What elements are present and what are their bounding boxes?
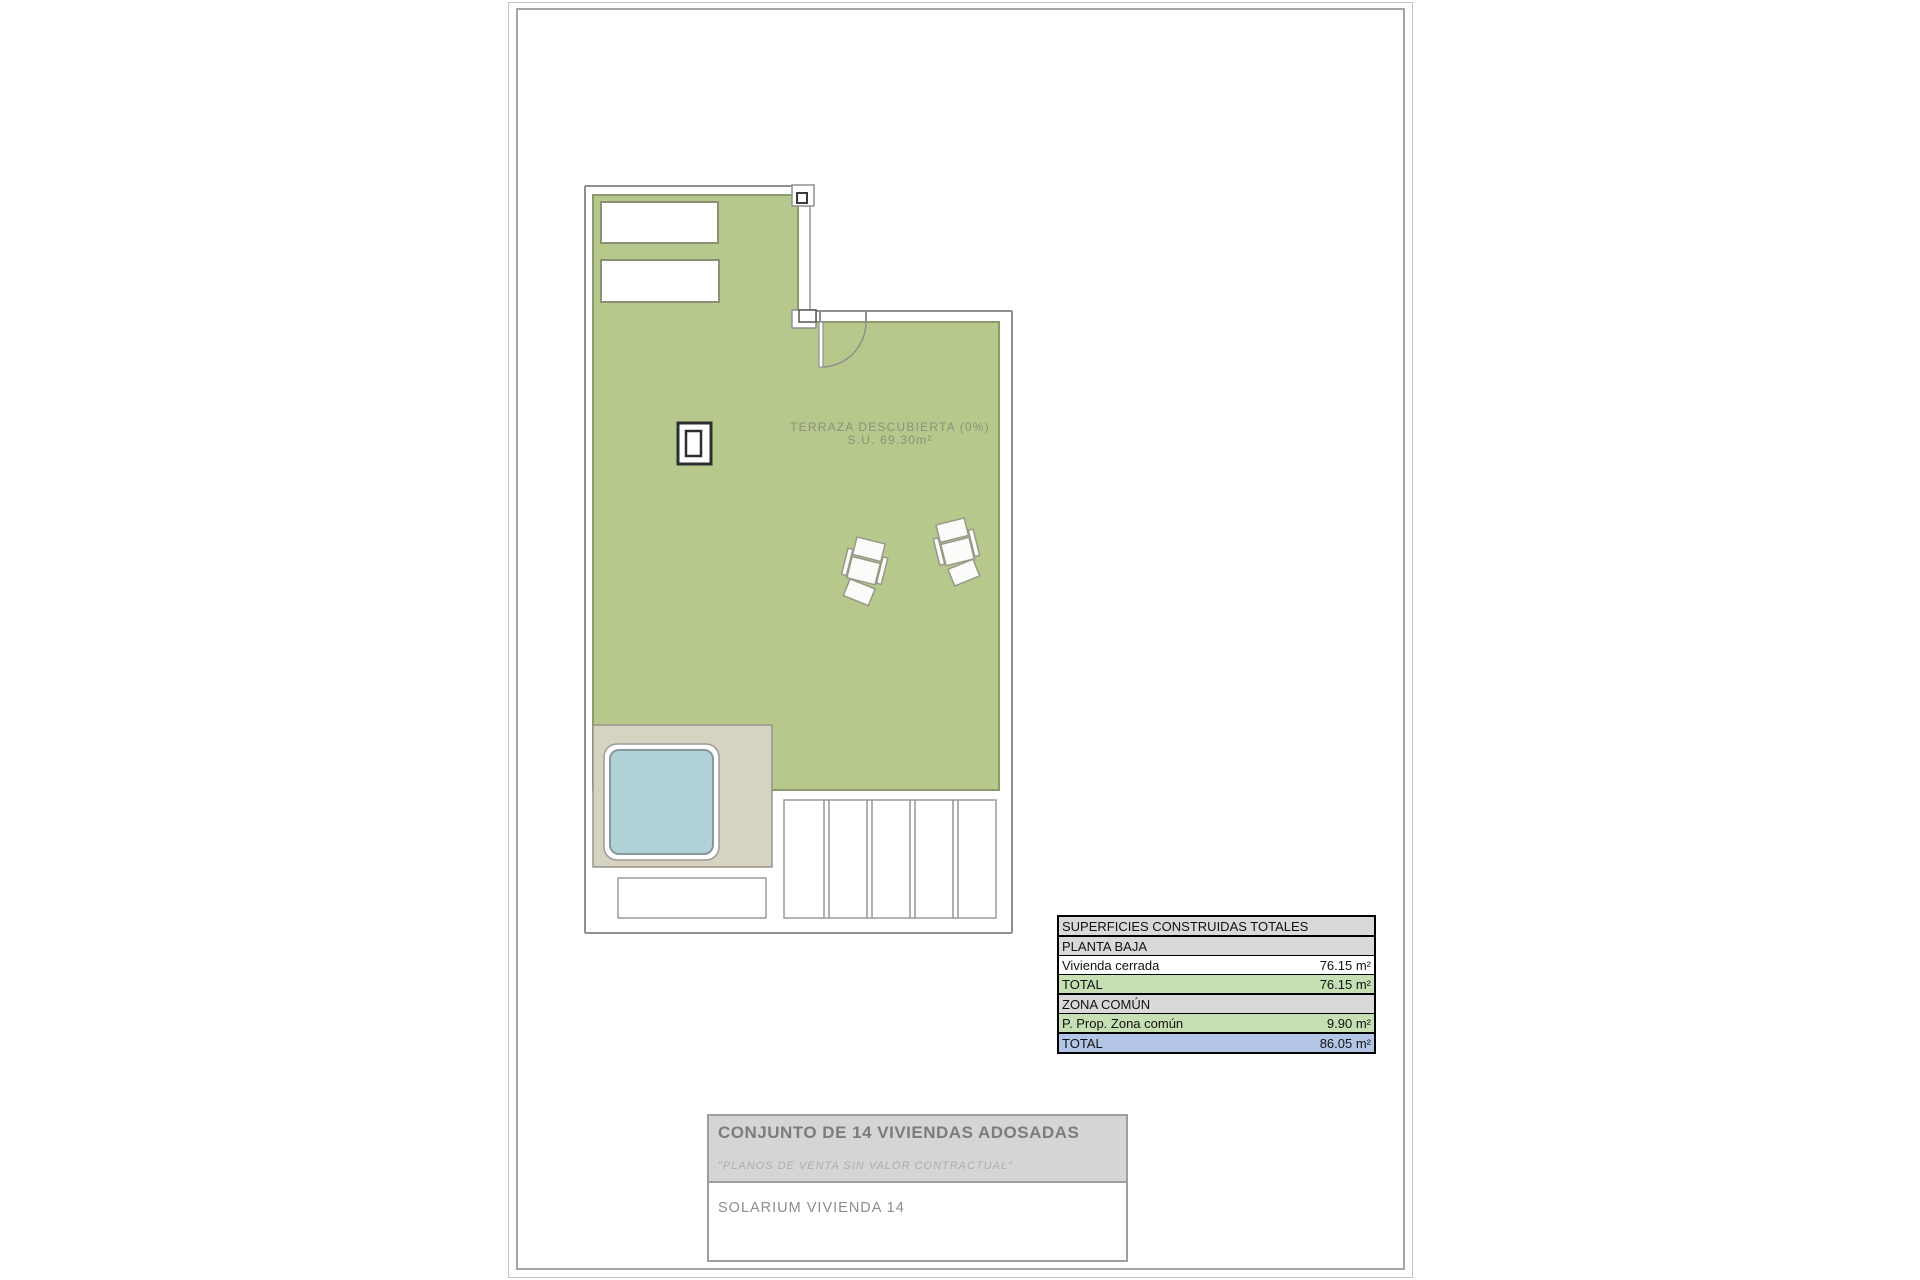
pool [610,750,713,854]
row-label: PLANTA BAJA [1062,939,1371,954]
table-row-zona-comun: ZONA COMÚN [1059,993,1374,1013]
roof-opening-upper [601,202,718,243]
table-row-vivienda-cerrada: Vivienda cerrada 76.15 m² [1059,955,1374,974]
row-value: 76.15 m² [1320,977,1371,992]
title-block-body: SOLARIUM VIVIENDA 14 [709,1183,1126,1260]
terrace-label-line1: TERRAZA DESCUBIERTA (0%) [790,420,990,434]
row-label: P. Prop. Zona común [1062,1016,1327,1031]
row-label: TOTAL [1062,977,1320,992]
roof-opening-lower [601,260,719,302]
row-value: 86.05 m² [1320,1036,1371,1051]
planter [618,878,766,918]
drawing-sheet-page: TERRAZA DESCUBIERTA (0%) S.U. 69.30m² SU… [0,0,1920,1280]
row-label: ZONA COMÚN [1062,997,1371,1012]
solarium-floor-plan: TERRAZA DESCUBIERTA (0%) S.U. 69.30m² [560,160,1040,960]
column-mid [792,310,816,328]
title-block-header: CONJUNTO DE 14 VIVIENDAS ADOSADAS "PLANO… [709,1116,1126,1183]
table-row-total-planta: TOTAL 76.15 m² [1059,974,1374,993]
sheet-name: SOLARIUM VIVIENDA 14 [718,1200,905,1216]
disclaimer-text: "PLANOS DE VENTA SIN VALOR CONTRACTUAL" [718,1160,1013,1172]
areas-table: SUPERFICIES CONSTRUIDAS TOTALES PLANTA B… [1057,915,1376,1054]
table-row-prop-zona-comun: P. Prop. Zona común 9.90 m² [1059,1013,1374,1032]
chimney [678,423,711,464]
areas-table-header: SUPERFICIES CONSTRUIDAS TOTALES [1059,917,1374,935]
table-row-total-general: TOTAL 86.05 m² [1059,1032,1374,1052]
row-value: 9.90 m² [1327,1016,1371,1031]
pergola-slats [784,800,996,918]
terrace-label-line2: S.U. 69.30m² [847,433,932,447]
row-value: 76.15 m² [1320,958,1371,973]
table-row-planta-baja: PLANTA BAJA [1059,935,1374,955]
title-block: CONJUNTO DE 14 VIVIENDAS ADOSADAS "PLANO… [707,1114,1128,1262]
column-top [792,185,814,206]
areas-table-title: SUPERFICIES CONSTRUIDAS TOTALES [1062,919,1371,934]
row-label: Vivienda cerrada [1062,958,1320,973]
project-title: CONJUNTO DE 14 VIVIENDAS ADOSADAS [718,1123,1079,1143]
row-label: TOTAL [1062,1036,1320,1051]
